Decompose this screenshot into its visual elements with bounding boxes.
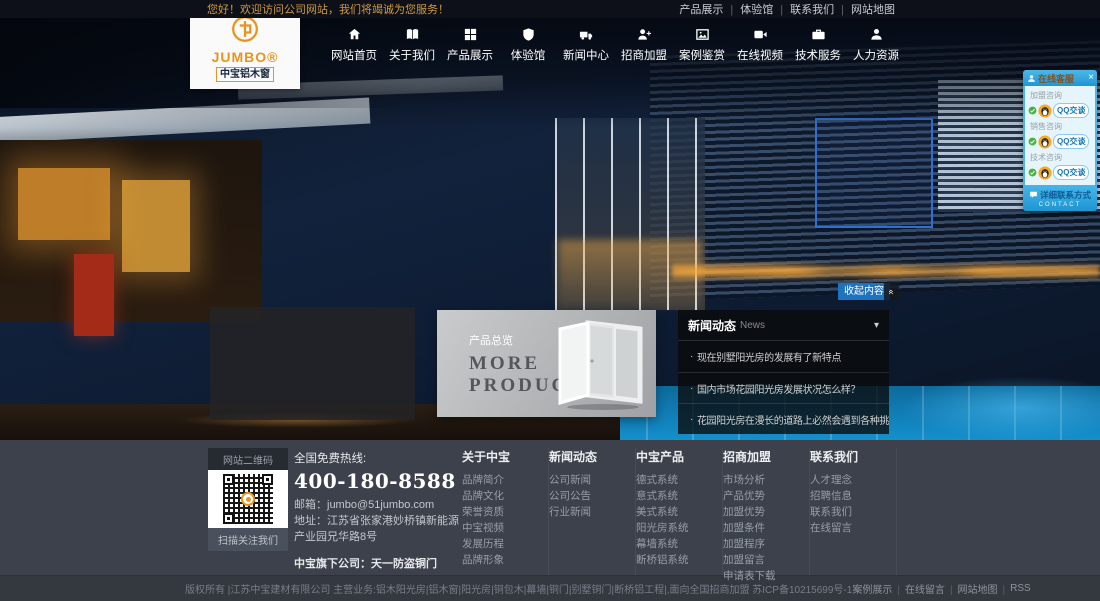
qq-row: QQ交谈 — [1028, 134, 1092, 149]
news-header: 新闻动态 News ▾ — [678, 310, 889, 341]
nav-label: 在线视频 — [737, 47, 783, 63]
online-service-body: 加盟咨询 QQ交谈 销售咨询 QQ交谈 技术咨询 — [1023, 86, 1097, 185]
chevron-down-icon[interactable]: ▾ — [874, 320, 879, 331]
hero-shape-window-glow — [18, 168, 110, 240]
email-value[interactable]: jumbo@51jumbo.com — [327, 499, 434, 511]
address-label: 地址： — [294, 515, 327, 527]
email-label: 邮箱： — [294, 499, 327, 511]
footer: 网站二维码 扫描关注我们 全国免费热线: 400-180-8588 邮箱：jum… — [0, 440, 1100, 575]
nav-item-cases[interactable]: 案例鉴赏 — [673, 26, 731, 63]
footer-link[interactable]: 人才理念 — [810, 472, 890, 488]
qq-row: QQ交谈 — [1028, 165, 1092, 180]
nav-item-news[interactable]: 新闻中心 — [557, 26, 615, 63]
footer-link[interactable]: 加盟留言 — [723, 552, 803, 568]
online-service-header: 在线客服 × — [1023, 70, 1097, 86]
nav-item-showroom[interactable]: 体验馆 — [499, 26, 557, 63]
footer-column-title: 联系我们 — [810, 448, 890, 465]
news-panel: 新闻动态 News ▾ 现在别墅阳光房的发展有了新特点 国内市场花园阳光房发展状… — [678, 310, 889, 434]
qrcode-logo-icon — [241, 492, 255, 506]
nav-item-products[interactable]: 产品展示 — [441, 26, 499, 63]
hero-shape-pool-glow — [900, 376, 1100, 440]
qrcode-caption[interactable]: 扫描关注我们 — [208, 528, 288, 551]
hero-banner: JUMBO® 中宝铝木窗 网站首页 关于我们 产品展示 体验馆 — [0, 18, 1100, 440]
person-icon — [1027, 74, 1036, 83]
footer-columns: 关于中宝 品牌简介 品牌文化 荣誉资质 中宝视频 发展历程 品牌形象 新闻动态 … — [462, 448, 897, 575]
nav-item-service[interactable]: 技术服务 — [789, 26, 847, 63]
contact-detail-sub: CONTACT — [1039, 202, 1082, 208]
qrcode-eye — [262, 474, 273, 485]
logo-emblem-icon — [231, 18, 259, 48]
copyright-text: 版权所有 |江苏中宝建材有限公司 主营业务:铝木阳光房|铝木窗|阳光房|铜包木|… — [185, 581, 852, 596]
footer-link[interactable]: 产品优势 — [723, 488, 803, 504]
logo-name: JUMBO® — [212, 49, 279, 65]
footer-link[interactable]: 阳光房系统 — [636, 520, 716, 536]
qq-group-label: 加盟咨询 — [1030, 90, 1092, 101]
nav-label: 新闻中心 — [563, 47, 609, 63]
qq-penguin-icon — [1038, 166, 1052, 180]
bottom-link-message[interactable]: 在线留言 — [905, 581, 958, 596]
footer-link[interactable]: 幕墙系统 — [636, 536, 716, 552]
qrcode-eye — [223, 513, 234, 524]
topbar-links: 产品展示 体验馆 联系我们 网站地图 — [679, 1, 895, 17]
briefcase-icon — [811, 26, 826, 43]
user-icon — [869, 26, 884, 43]
footer-link[interactable]: 断桥铝系统 — [636, 552, 716, 568]
online-service-widget: 在线客服 × 加盟咨询 QQ交谈 销售咨询 — [1023, 70, 1097, 211]
qq-penguin-icon — [1038, 135, 1052, 149]
nav-label: 技术服务 — [795, 47, 841, 63]
nav-item-hr[interactable]: 人力资源 — [847, 26, 905, 63]
bottom-link-sitemap[interactable]: 网站地图 — [958, 581, 1011, 596]
footer-column-franchise: 招商加盟 市场分析 产品优势 加盟优势 加盟条件 加盟程序 加盟留言 申请表下载 — [723, 448, 810, 575]
truck-icon — [579, 26, 594, 43]
bottom-link-cases[interactable]: 案例展示 — [852, 581, 905, 596]
footer-link[interactable]: 行业新闻 — [549, 504, 629, 520]
news-item[interactable]: 现在别墅阳光房的发展有了新特点 — [678, 341, 889, 372]
user-plus-icon — [637, 26, 652, 43]
topbar-link-showroom[interactable]: 体验馆 — [740, 1, 790, 17]
qrcode-title: 网站二维码 — [208, 448, 288, 470]
footer-link[interactable]: 品牌形象 — [462, 552, 542, 568]
nav-item-franchise[interactable]: 招商加盟 — [615, 26, 673, 63]
nav-item-home[interactable]: 网站首页 — [325, 26, 383, 63]
topbar-link-contact[interactable]: 联系我们 — [790, 1, 851, 17]
subsidiary-line: 中宝旗下公司：天一防盗铜门 — [294, 555, 460, 571]
footer-link[interactable]: 荣誉资质 — [462, 504, 542, 520]
hero-shape-red-wall — [74, 254, 114, 336]
footer-column-title: 关于中宝 — [462, 448, 542, 465]
footer-link[interactable]: 中宝视频 — [462, 520, 542, 536]
bottom-links: 案例展示 在线留言 网站地图 RSS — [852, 581, 1030, 596]
photo-icon — [695, 26, 710, 43]
footer-column-contact: 联系我们 人才理念 招聘信息 联系我们 在线留言 — [810, 448, 897, 575]
online-status-icon — [1028, 137, 1037, 146]
nav-label: 产品展示 — [447, 47, 493, 63]
footer-link[interactable]: 品牌简介 — [462, 472, 542, 488]
grid-icon — [463, 26, 478, 43]
contact-detail-row: 详细联系方式 — [1029, 189, 1091, 201]
footer-link[interactable]: 在线留言 — [810, 520, 890, 536]
nav-label: 案例鉴赏 — [679, 47, 725, 63]
nav-label: 体验馆 — [511, 47, 546, 63]
qq-group-tech: 技术咨询 QQ交谈 — [1028, 152, 1092, 180]
footer-link[interactable]: 发展历程 — [462, 536, 542, 552]
contact-detail-label: 详细联系方式 — [1040, 189, 1091, 201]
logo-subtitle: 中宝铝木窗 — [216, 67, 274, 82]
hero-selection-rectangle — [815, 118, 933, 228]
footer-link[interactable]: 市场分析 — [723, 472, 803, 488]
footer-link[interactable]: 意式系统 — [636, 488, 716, 504]
qrcode-pattern — [223, 474, 273, 524]
company-logo[interactable]: JUMBO® 中宝铝木窗 — [190, 18, 300, 89]
qq-penguin-icon — [1038, 104, 1052, 118]
footer-column-title: 中宝产品 — [636, 448, 716, 465]
more-products-banner[interactable]: 产品总览 MORE PRODUCTS — [437, 310, 656, 417]
topbar-link-sitemap[interactable]: 网站地图 — [851, 1, 895, 17]
qq-chat-button[interactable]: QQ交谈 — [1053, 103, 1089, 118]
news-item[interactable]: 花园阳光房在漫长的道路上必然会遇到各种挑战 — [678, 403, 889, 434]
qq-chat-button[interactable]: QQ交谈 — [1053, 165, 1089, 180]
contact-detail-button[interactable]: 详细联系方式 CONTACT — [1023, 185, 1097, 211]
nav-item-videos[interactable]: 在线视频 — [731, 26, 789, 63]
speech-bubble-icon — [1029, 190, 1038, 199]
email-line: 邮箱：jumbo@51jumbo.com — [294, 497, 460, 513]
footer-link[interactable]: 联系我们 — [810, 504, 890, 520]
footer-link[interactable]: 加盟条件 — [723, 520, 803, 536]
nav-label: 招商加盟 — [621, 47, 667, 63]
footer-column-title: 新闻动态 — [549, 448, 629, 465]
video-icon — [753, 26, 768, 43]
bottom-bar: 版权所有 |江苏中宝建材有限公司 主营业务:铝木阳光房|铝木窗|阳光房|铜包木|… — [0, 575, 1100, 601]
collapse-content-button[interactable]: 收起内容 — [838, 283, 890, 300]
footer-column-products: 中宝产品 德式系统 意式系统 美式系统 阳光房系统 幕墙系统 断桥铝系统 — [636, 448, 723, 575]
news-item[interactable]: 国内市场花园阳光房发展状况怎么样？ — [678, 372, 889, 403]
main-nav: 网站首页 关于我们 产品展示 体验馆 新闻中心 招商加盟 — [325, 26, 905, 63]
footer-link[interactable]: 招聘信息 — [810, 488, 890, 504]
footer-column-news: 新闻动态 公司新闻 公司公告 行业新闻 — [549, 448, 636, 575]
online-service-title: 在线客服 — [1038, 72, 1074, 85]
footer-link[interactable]: 公司新闻 — [549, 472, 629, 488]
news-title-en: News — [740, 320, 765, 331]
online-status-icon — [1028, 168, 1037, 177]
nav-item-about[interactable]: 关于我们 — [383, 26, 441, 63]
qrcode-box: 网站二维码 扫描关注我们 — [208, 448, 288, 575]
news-title: 新闻动态 — [688, 317, 736, 334]
qrcode-image — [208, 470, 288, 528]
footer-contact-info: 全国免费热线: 400-180-8588 邮箱：jumbo@51jumbo.co… — [294, 448, 460, 575]
welcome-message: 您好！欢迎访问公司网站，我们将竭诚为您服务！ — [207, 1, 449, 17]
nav-label: 人力资源 — [853, 47, 899, 63]
topbar-link-products[interactable]: 产品展示 — [679, 1, 740, 17]
hero-shape-window-glow-2 — [122, 180, 190, 272]
footer-link[interactable]: 加盟优势 — [723, 504, 803, 520]
footer-column-title: 招商加盟 — [723, 448, 803, 465]
nav-label: 网站首页 — [331, 47, 377, 63]
bottom-link-rss[interactable]: RSS — [1010, 583, 1031, 594]
top-bar: 您好！欢迎访问公司网站，我们将竭诚为您服务！ 产品展示 体验馆 联系我们 网站地… — [0, 0, 1100, 18]
footer-column-about: 关于中宝 品牌简介 品牌文化 荣誉资质 中宝视频 发展历程 品牌形象 — [462, 448, 549, 575]
products-banner-backdrop — [210, 307, 415, 420]
qq-group-label: 销售咨询 — [1030, 121, 1092, 132]
qq-group-label: 技术咨询 — [1030, 152, 1092, 163]
chevron-up-icon[interactable]: « — [884, 283, 899, 300]
footer-link[interactable]: 品牌文化 — [462, 488, 542, 504]
footer-link[interactable]: 公司公告 — [549, 488, 629, 504]
window-product-image — [548, 315, 648, 420]
qq-chat-button[interactable]: QQ交谈 — [1053, 134, 1089, 149]
hotline-label: 全国免费热线: — [294, 450, 460, 466]
qq-row: QQ交谈 — [1028, 103, 1092, 118]
qq-group-franchise: 加盟咨询 QQ交谈 — [1028, 90, 1092, 118]
footer-link[interactable]: 美式系统 — [636, 504, 716, 520]
online-status-icon — [1028, 106, 1037, 115]
footer-link[interactable]: 德式系统 — [636, 472, 716, 488]
shield-icon — [521, 26, 536, 43]
qrcode-eye — [223, 474, 234, 485]
qq-group-sales: 销售咨询 QQ交谈 — [1028, 121, 1092, 149]
hotline-number: 400-180-8588 — [294, 469, 460, 493]
address-line: 地址：江苏省张家港妙桥镇新能源产业园兄华路8号 — [294, 513, 460, 545]
close-icon[interactable]: × — [1088, 70, 1094, 86]
page: 您好！欢迎访问公司网站，我们将竭诚为您服务！ 产品展示 体验馆 联系我们 网站地… — [0, 0, 1100, 601]
book-icon — [405, 26, 420, 43]
home-icon — [347, 26, 362, 43]
nav-label: 关于我们 — [389, 47, 435, 63]
footer-link[interactable]: 加盟程序 — [723, 536, 803, 552]
